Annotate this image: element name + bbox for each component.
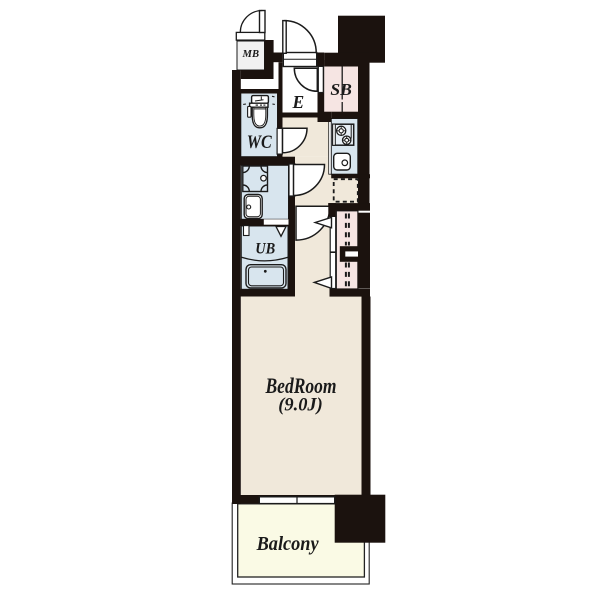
svg-text:SB: SB: [330, 80, 352, 99]
svg-text:Balcony: Balcony: [256, 533, 320, 555]
svg-text:WC: WC: [247, 132, 272, 153]
svg-text:MB: MB: [242, 48, 259, 60]
svg-text:UB: UB: [255, 240, 275, 257]
svg-text:E: E: [292, 92, 305, 112]
svg-text:(9.0J): (9.0J): [278, 395, 323, 416]
